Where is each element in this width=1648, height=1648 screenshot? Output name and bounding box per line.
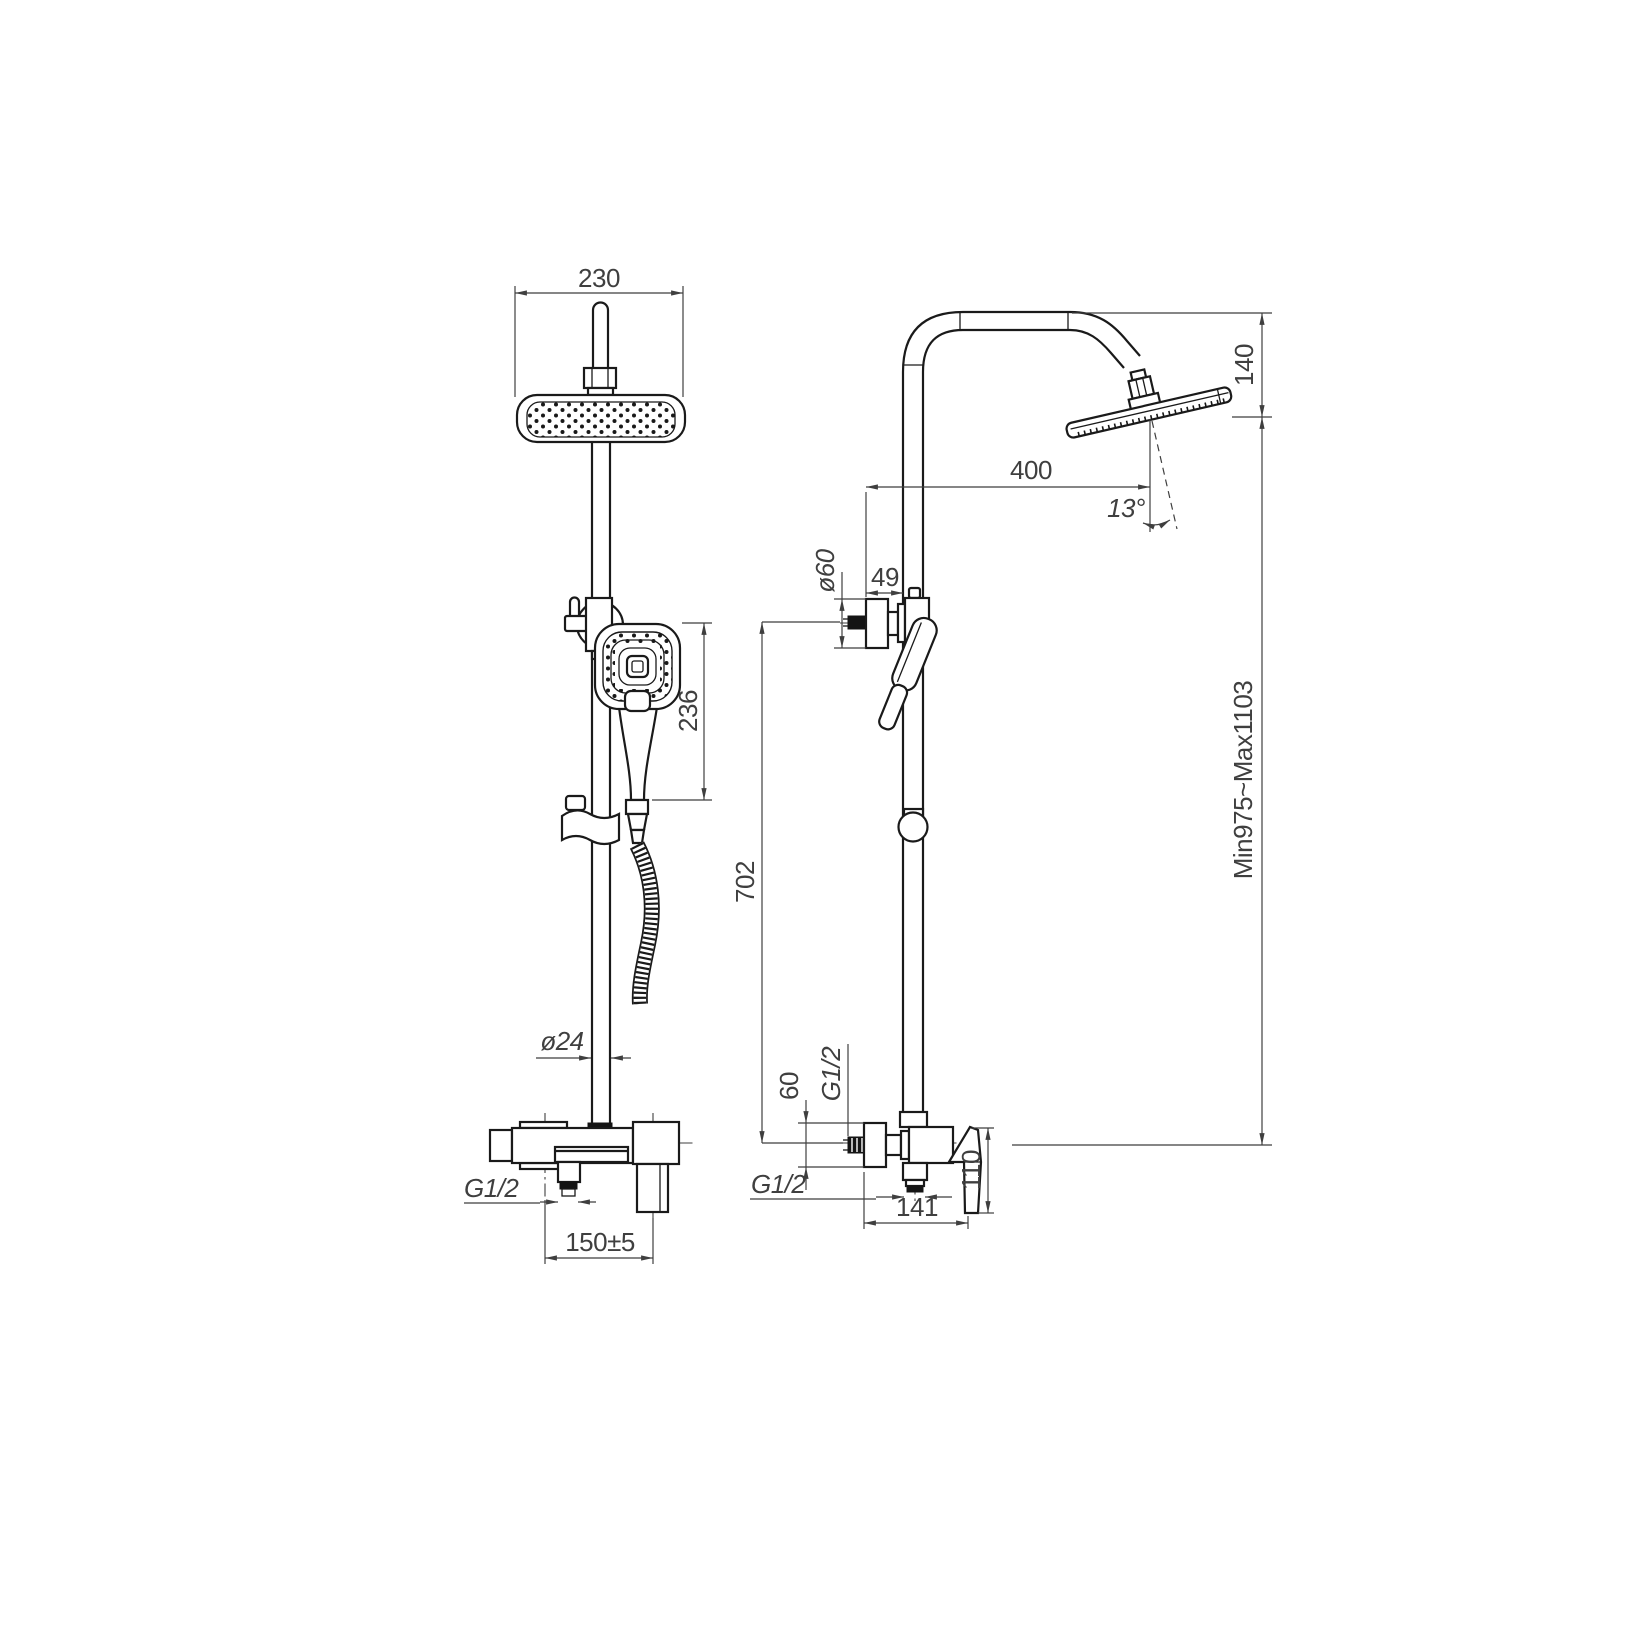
label-text-wall-thread: G1/2 — [816, 1046, 846, 1101]
label-text-outlet-thread-front: G1/2 — [464, 1173, 519, 1203]
dim-text-head-drop: 140 — [1229, 344, 1259, 386]
holder-flange — [866, 599, 888, 648]
dim-text-hand-shower-height: 236 — [673, 690, 703, 732]
shower-pole-front — [588, 442, 612, 1128]
mixer-spout-front — [555, 1147, 628, 1162]
dim-text-handle-height: 110 — [956, 1150, 986, 1190]
side-view: 400 13° ø60 49 702 — [730, 312, 1272, 1229]
dim-holder-offset: 49 — [866, 562, 903, 593]
rain-shower-head-side — [1065, 368, 1232, 439]
dim-text-holder-offset: 49 — [871, 562, 899, 592]
dim-height-range: 140 Min975~Max1103 — [1012, 313, 1272, 1145]
shower-pipe-side — [903, 312, 1140, 1127]
hand-shower-handle — [619, 707, 657, 800]
hand-shower-center-button — [627, 656, 648, 677]
hand-shower-mode-button — [625, 691, 650, 711]
shower-arm-front — [584, 303, 616, 395]
aerator-front — [560, 1182, 577, 1189]
dim-text-bar-to-mixer: 702 — [730, 861, 760, 903]
label-text-outlet-thread-side: G1/2 — [751, 1169, 806, 1199]
mixer-handle-front — [633, 1122, 679, 1164]
dim-holder-diameter: ø60 — [810, 548, 866, 648]
dim-text-flange-height: 60 — [774, 1072, 804, 1100]
wall-anchor-pin — [848, 616, 866, 629]
dim-text-pipe-diameter: ø24 — [540, 1026, 583, 1056]
hand-shower-front — [595, 624, 680, 843]
dim-text-holder-diameter: ø60 — [810, 548, 840, 592]
dim-head-angle: 13° — [1107, 419, 1177, 532]
dim-head-reach: 400 — [866, 455, 1150, 597]
dim-text-body-depth: 141 — [896, 1192, 938, 1222]
dim-pipe-diameter: ø24 — [536, 1026, 631, 1058]
mixer-flange-side — [864, 1123, 886, 1167]
dim-text-head-width: 230 — [578, 263, 620, 293]
front-view: 230 236 ø24 G1/2 150±5 — [464, 263, 712, 1264]
hand-shower-holder-side — [840, 588, 940, 733]
dim-text-height-range: Min975~Max1103 — [1228, 681, 1258, 880]
shower-hose — [637, 845, 652, 1004]
dim-text-head-angle: 13° — [1107, 493, 1145, 523]
mixer-body-side — [909, 1127, 953, 1163]
technical-drawing: 230 236 ø24 G1/2 150±5 — [0, 0, 1648, 1648]
label-wall-thread-side: G1/2 — [816, 1044, 848, 1136]
dim-text-head-reach: 400 — [1010, 455, 1052, 485]
rain-shower-head-front — [517, 395, 685, 442]
drawing-page: 230 236 ø24 G1/2 150±5 — [0, 0, 1648, 1648]
dim-text-inlet-spacing: 150±5 — [565, 1227, 635, 1257]
